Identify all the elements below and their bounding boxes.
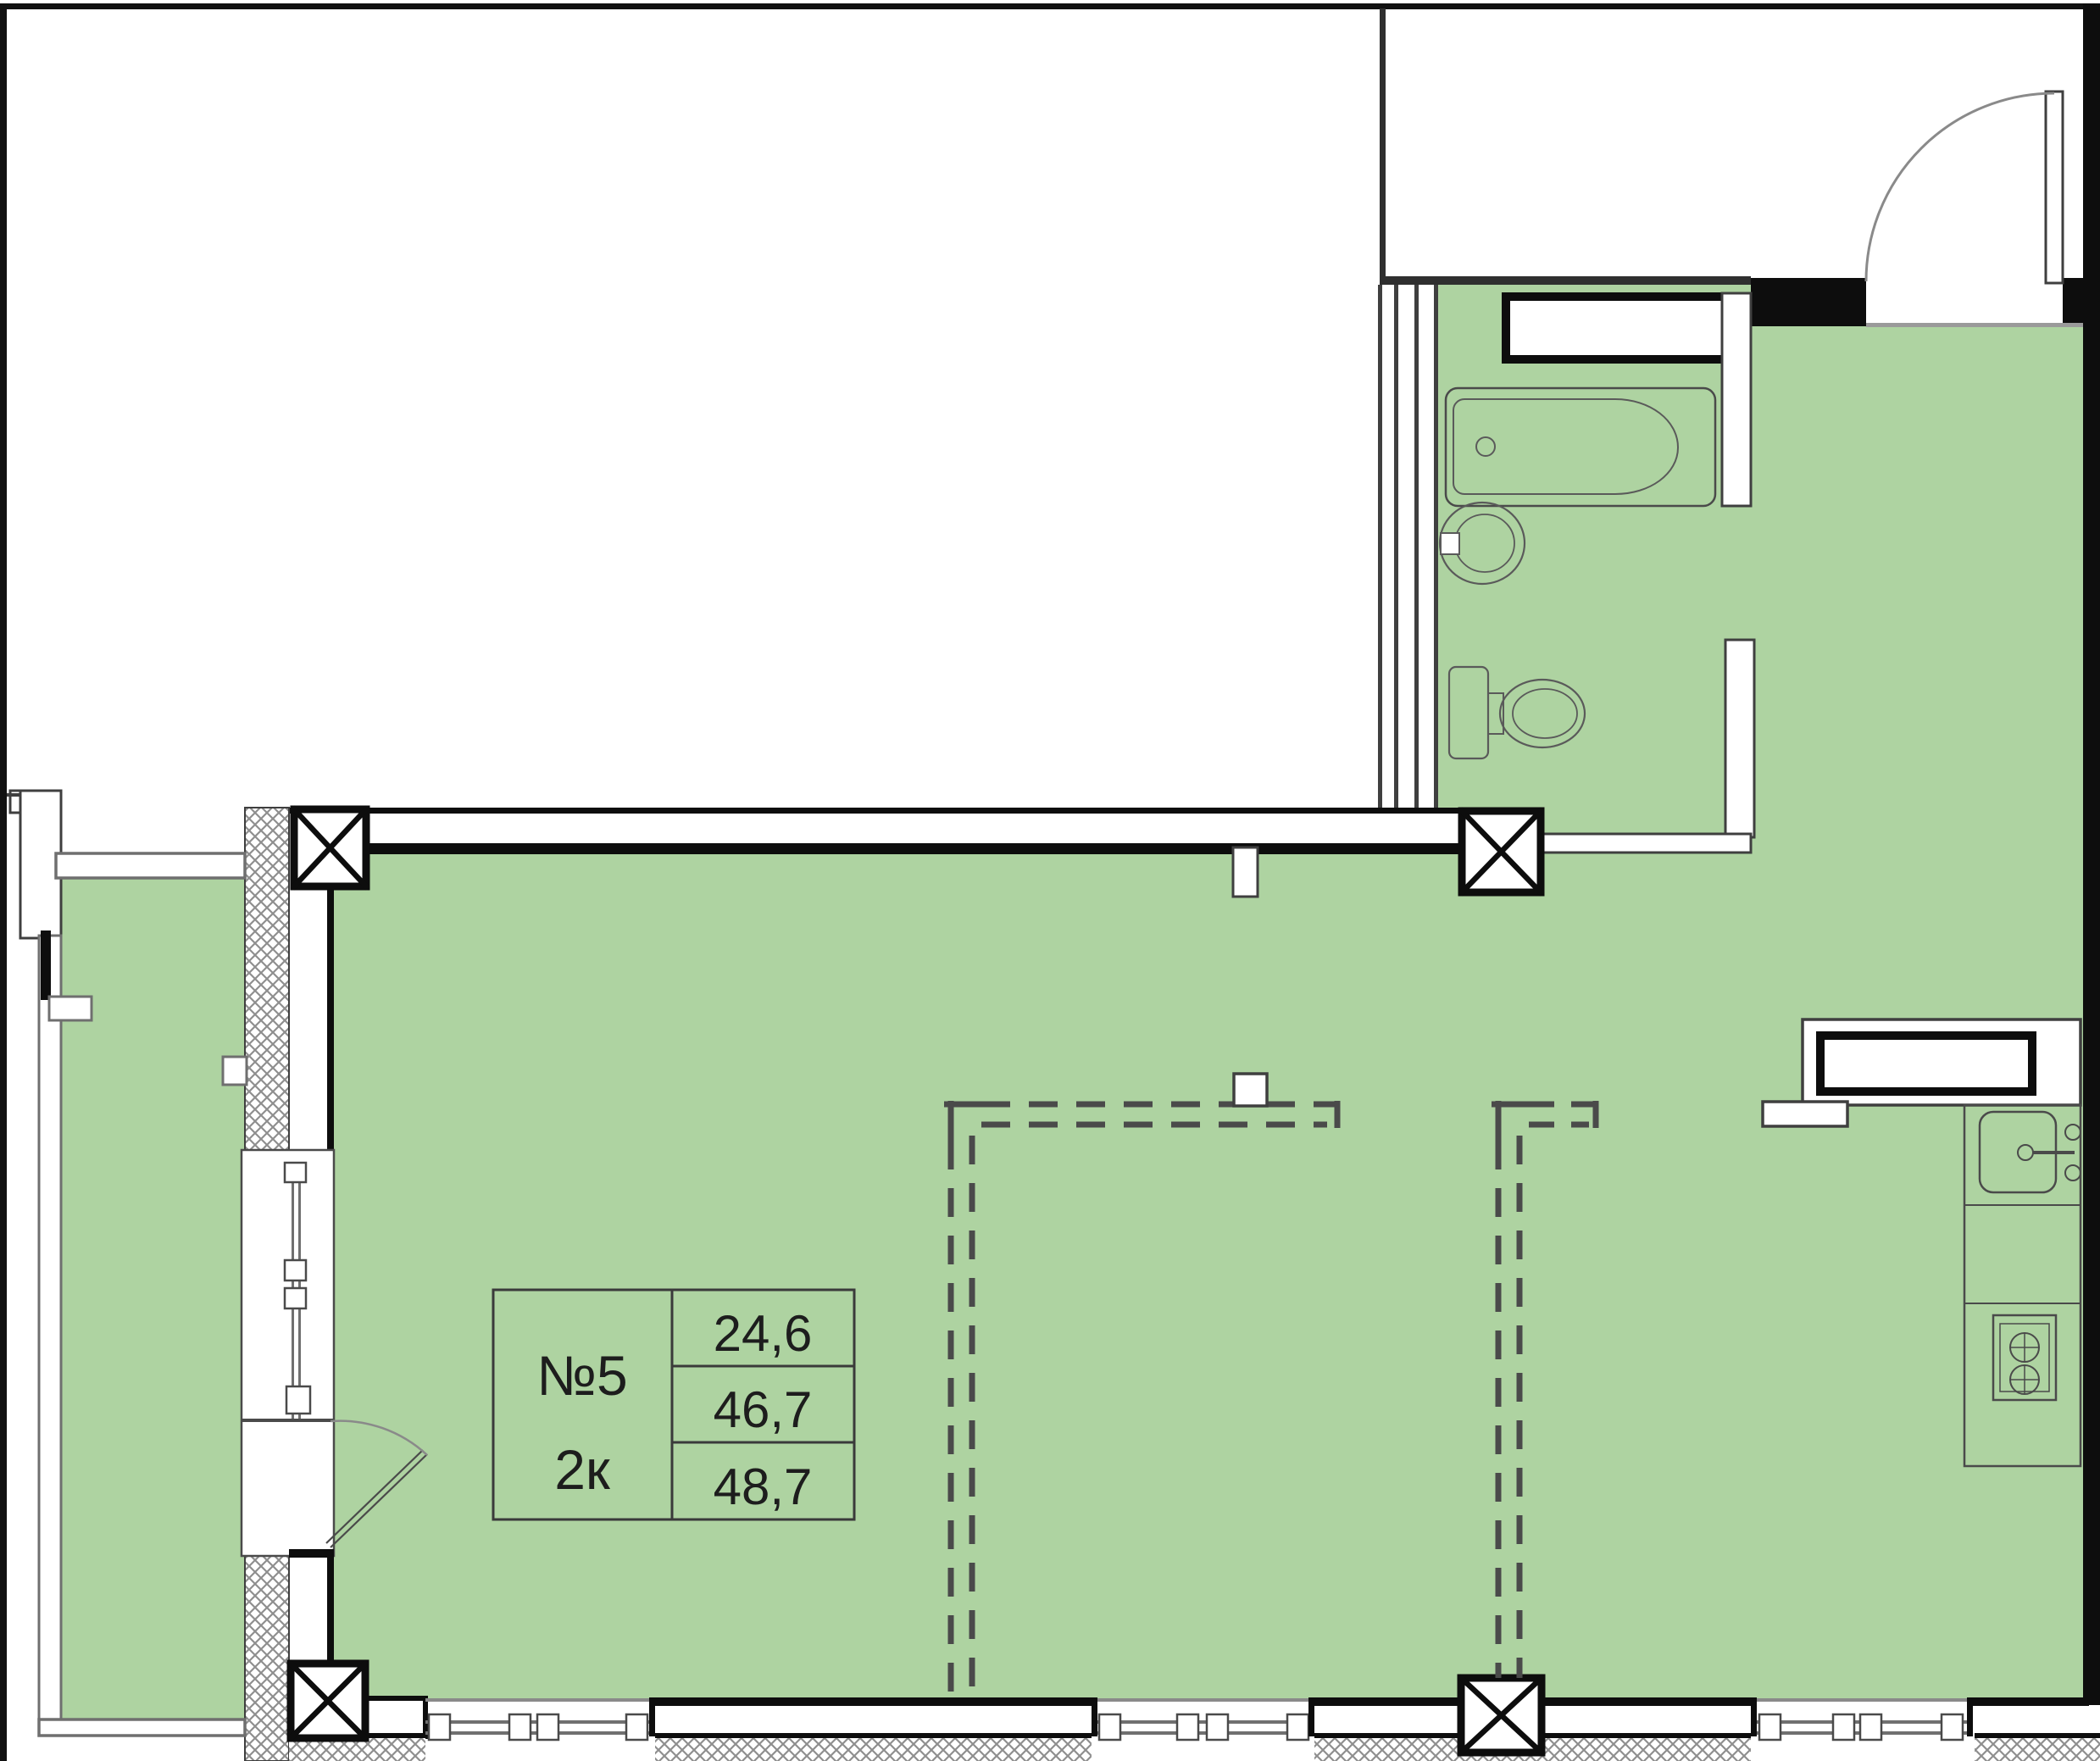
wall-cap [1967,1697,1973,1736]
wall-line [1434,285,1438,808]
balcony-rail-bottom [39,1719,245,1736]
window-outer-edge [1097,1698,1314,1702]
window-mullion [1177,1714,1198,1740]
window-mullion [285,1163,306,1182]
column [291,1664,365,1738]
partition-connection-nib [1233,847,1258,897]
window-mullion [1942,1714,1963,1740]
pier-frame-link [7,793,20,797]
window-mullion [285,1288,306,1308]
floor-plan-canvas: №5 2к 24,6 46,7 48,7 [0,0,2100,1761]
window-mullion [285,1260,306,1280]
window-mullion [1759,1714,1781,1740]
window [1757,1698,1967,1740]
floor-plan-drawing: №5 2к 24,6 46,7 48,7 [0,0,2100,1761]
entrance-door-leaf [2046,92,2063,283]
wall-cap [1751,1697,1757,1736]
window-mullion [1860,1714,1881,1740]
wall-edge [655,1733,1092,1738]
window-mullion [429,1714,450,1740]
wall-top-line [655,1697,1092,1706]
frame-left [0,3,7,1761]
bottom-facade [289,1697,2100,1761]
wall-cap [1092,1697,1097,1736]
wall-top-line [289,808,1462,814]
wall-band [1378,285,1438,808]
hatched-wall [655,1738,1092,1761]
bathroom-bottom-wall [1541,834,1751,853]
wall-stub [365,1698,425,1736]
ventilation-shaft-kitchen [1820,1036,2032,1092]
door-handle-detail [286,1386,310,1414]
window-outer-edge [425,1698,655,1702]
wall-edge-lower [327,1556,334,1664]
entry-wall-right-stub [2063,278,2083,326]
column [1462,811,1541,892]
wall-edge [1975,1733,2100,1738]
entry-corridor-line [1380,8,1386,280]
column [1461,1678,1542,1753]
room-floors [61,285,2083,1719]
window [425,1698,655,1740]
window-mullion [1287,1714,1308,1740]
wall-edge-upper [327,854,334,1150]
wall-top-line [1973,1697,2089,1706]
wall-cap [649,1697,655,1736]
frame-top [0,3,2100,9]
wall-line [1378,285,1382,808]
window-mullion [1099,1714,1120,1740]
wall-cap [1308,1697,1314,1736]
window [1097,1698,1314,1740]
wall-line [1414,285,1419,808]
entrance-door-swing-arc [1866,93,2054,281]
wall-bottom-line [366,843,1462,854]
entry-bathroom-floor [1438,285,1866,856]
area-main: 46,7 [714,1381,813,1438]
facade-wall-segment [1967,1697,2100,1761]
window-mullion [1833,1714,1854,1740]
sink-tap [1441,533,1459,554]
hatched-wall [1975,1738,2100,1761]
bathroom-left-wall [1378,285,1438,808]
hallway-floor [1866,326,2083,856]
area-total: 48,7 [714,1458,813,1515]
frame-right-wall [2083,3,2100,1705]
bathroom-right-wall-upper [1722,293,1751,506]
balcony-rail-accent [41,930,51,1000]
entry-top-wall [1380,276,1751,285]
living-area-floor [334,852,2083,1699]
partition-wall-stub [1234,1074,1267,1106]
unit-number: №5 [536,1344,628,1407]
entry-wall-thick-segment [1751,278,1866,326]
entry-area [1380,8,2083,327]
balcony-rail-top [56,853,245,878]
area-living: 24,6 [714,1305,813,1362]
window-mullion [626,1714,647,1740]
balcony-block-frame [242,1150,334,1556]
facade-wall-segment [649,1697,1097,1761]
ventilation-shaft-bathroom [1506,297,1725,359]
bathroom-right-wall-lower [1725,640,1754,837]
door-window-divider [242,1419,334,1422]
window-mullion [537,1714,558,1740]
unit-type: 2к [554,1438,611,1501]
window-mullion [509,1714,531,1740]
balcony-door-threshold [289,1549,334,1558]
entrance-threshold [1866,323,2083,327]
kitchen-wall-stub [1763,1102,1847,1126]
balcony-glazing-post [49,997,92,1020]
balcony-glazing-post [223,1057,247,1085]
wall-line [1394,285,1398,808]
window-mullion [1207,1714,1228,1740]
column [294,809,366,886]
window-outer-edge [1757,1698,1967,1702]
balcony-rail-left [39,936,61,1736]
